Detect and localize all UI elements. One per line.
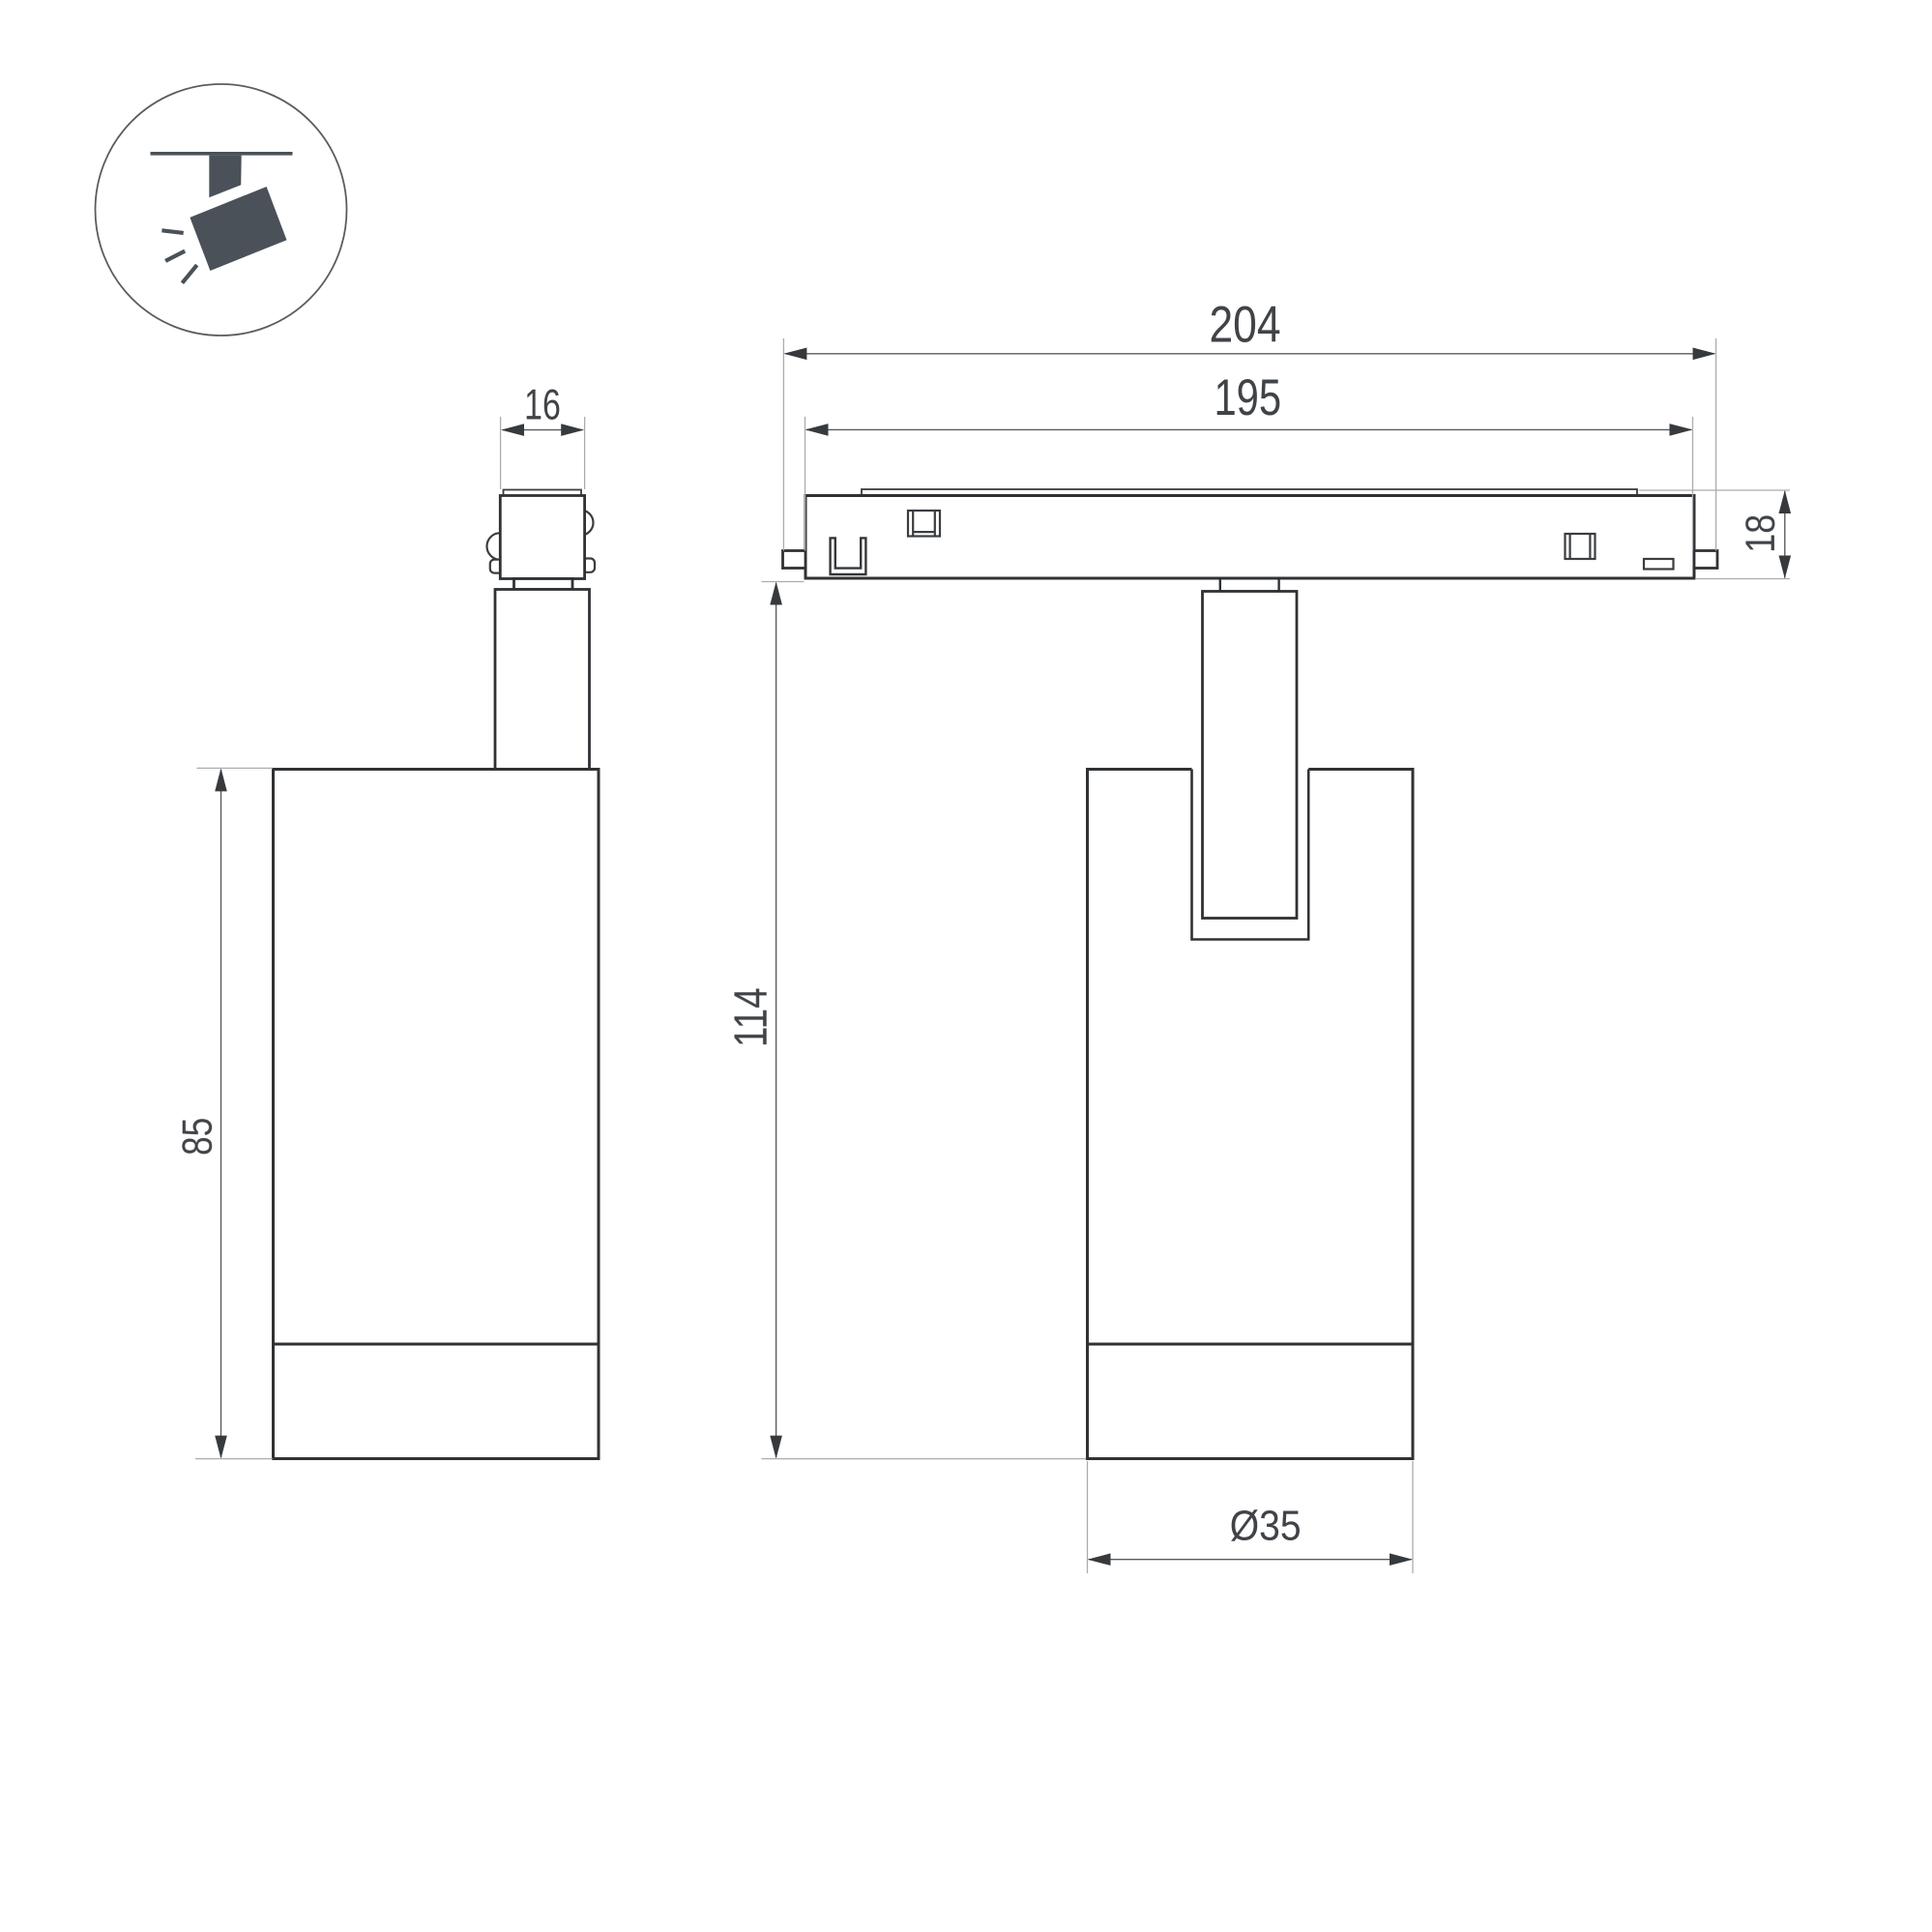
svg-text:16: 16	[524, 381, 561, 429]
svg-text:204: 204	[1209, 297, 1280, 354]
svg-text:85: 85	[174, 1118, 220, 1156]
svg-text:195: 195	[1214, 369, 1281, 426]
svg-text:114: 114	[726, 987, 777, 1047]
svg-text:Ø35: Ø35	[1230, 1502, 1302, 1548]
svg-text:18: 18	[1738, 514, 1784, 553]
